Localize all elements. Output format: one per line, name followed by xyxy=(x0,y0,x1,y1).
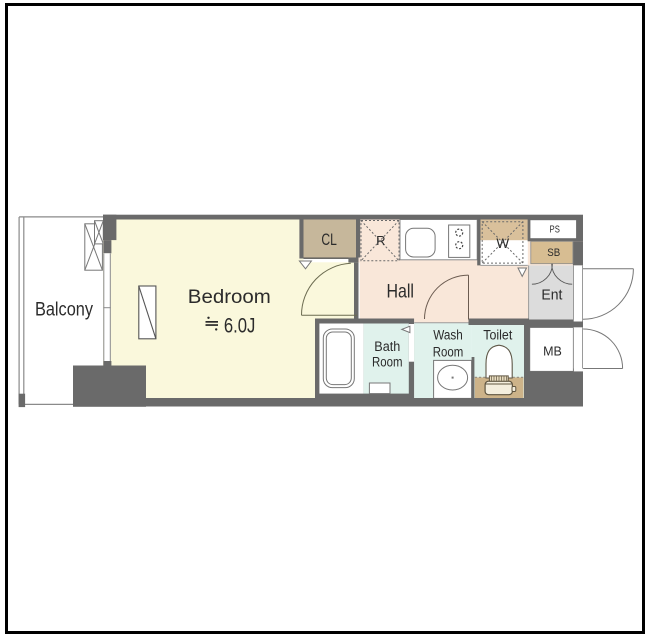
svg-text:Bedroom: Bedroom xyxy=(188,286,271,308)
svg-text:CL: CL xyxy=(321,231,337,249)
svg-text:Room: Room xyxy=(433,344,464,359)
svg-text:SB: SB xyxy=(547,247,560,259)
svg-text:R: R xyxy=(376,233,385,248)
svg-text:W: W xyxy=(496,236,509,251)
svg-text:Room: Room xyxy=(372,355,403,370)
svg-text:Hall: Hall xyxy=(386,281,414,303)
svg-text:Balcony: Balcony xyxy=(35,300,93,321)
svg-text:6.0J: 6.0J xyxy=(224,314,256,338)
svg-text:PS: PS xyxy=(550,224,561,235)
svg-text:Wash: Wash xyxy=(433,328,463,343)
svg-text:MB: MB xyxy=(543,344,562,358)
svg-text:Toilet: Toilet xyxy=(483,328,512,343)
svg-text:Bath: Bath xyxy=(374,339,400,354)
svg-text:Ent: Ent xyxy=(541,287,563,304)
